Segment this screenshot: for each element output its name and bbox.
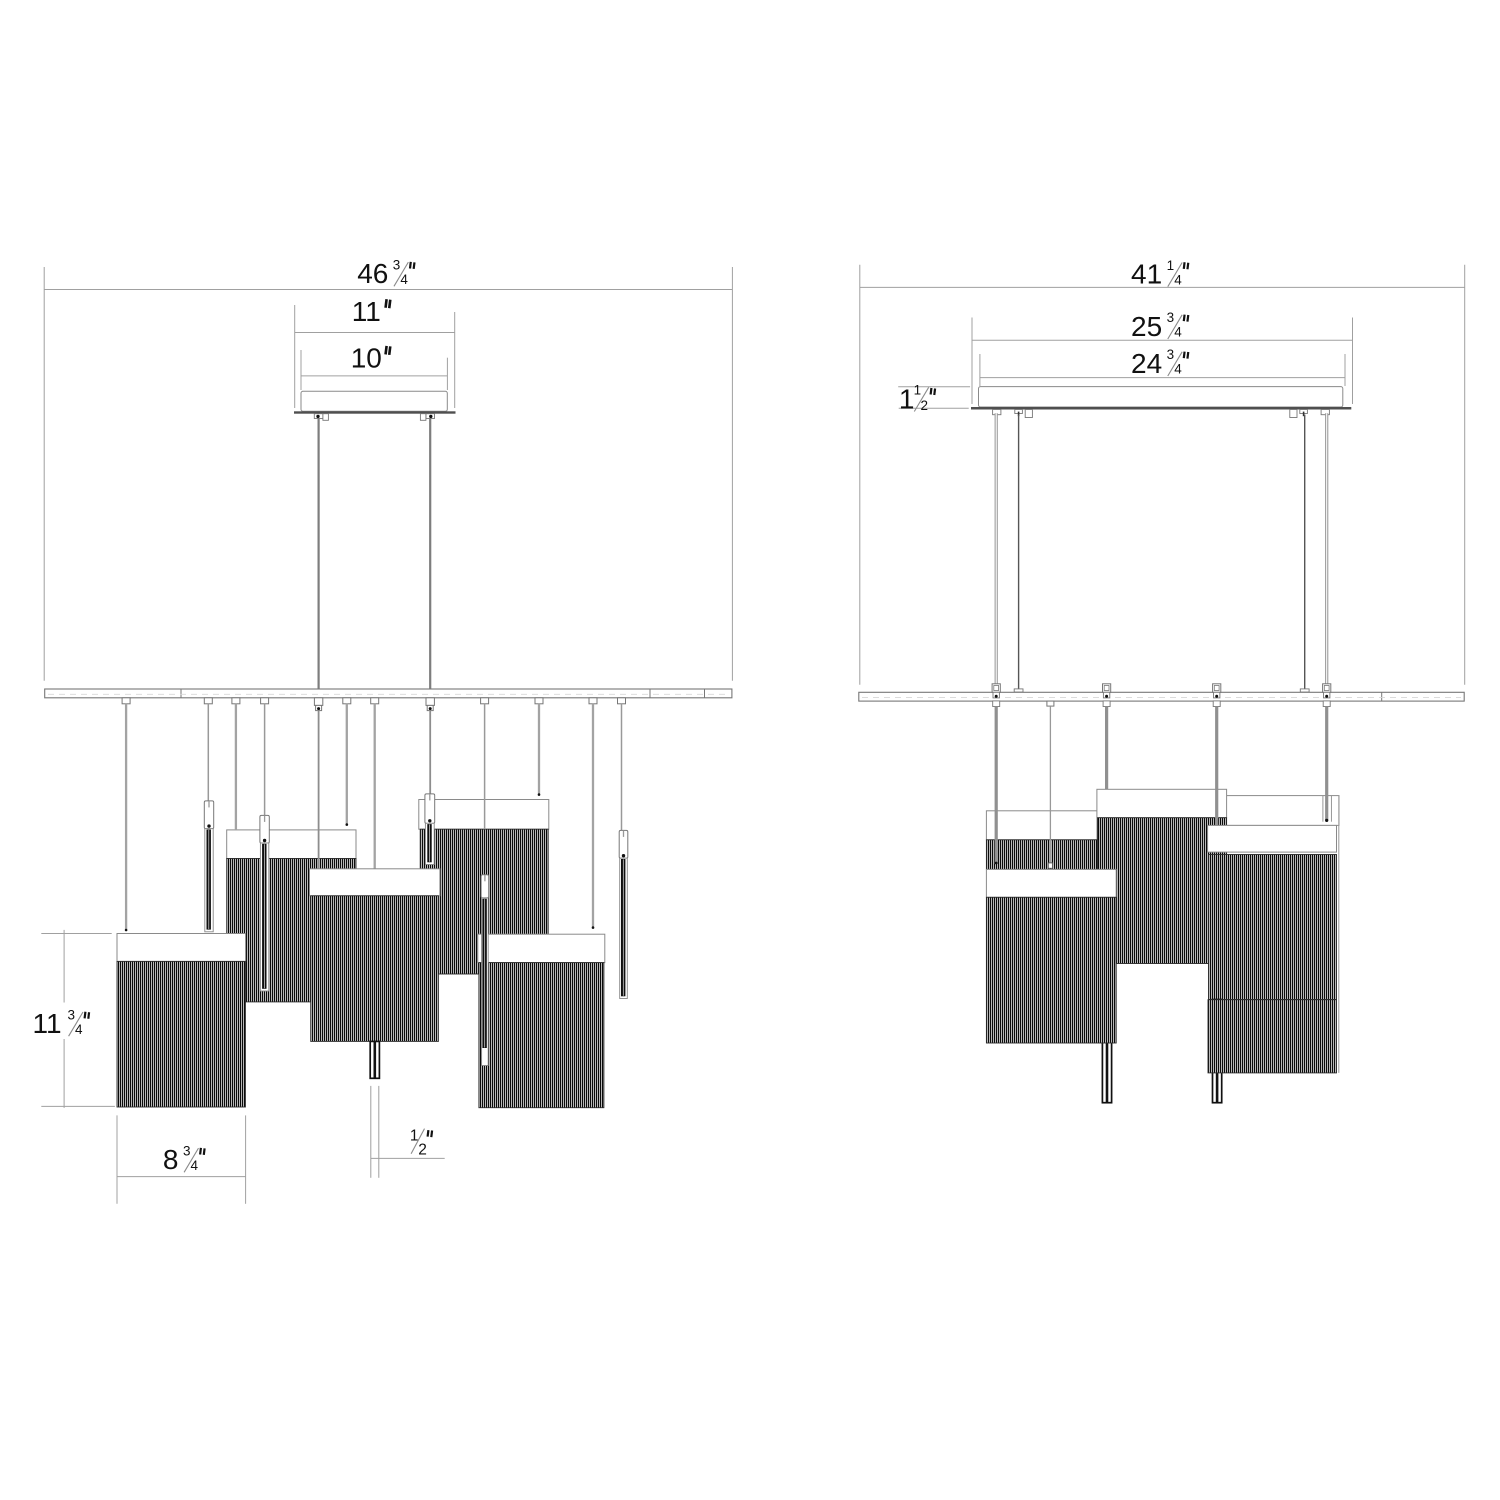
- svg-text:4: 4: [400, 272, 408, 287]
- svg-text:25: 25: [1131, 311, 1162, 342]
- svg-text:11: 11: [352, 296, 381, 327]
- svg-text:1: 1: [899, 383, 915, 414]
- svg-text:3: 3: [1167, 310, 1175, 325]
- svg-text:10: 10: [351, 343, 382, 374]
- svg-text:4: 4: [1174, 325, 1182, 340]
- svg-text:2: 2: [920, 398, 928, 413]
- svg-text:24: 24: [1131, 348, 1162, 379]
- svg-text:4: 4: [191, 1158, 199, 1173]
- svg-text:4: 4: [1174, 272, 1182, 287]
- svg-text:4: 4: [75, 1022, 83, 1037]
- svg-text:3: 3: [183, 1144, 191, 1159]
- svg-text:41: 41: [1131, 259, 1162, 290]
- svg-text:8: 8: [163, 1144, 179, 1175]
- svg-text:3: 3: [67, 1007, 75, 1022]
- svg-text:3: 3: [393, 258, 401, 273]
- svg-text:46: 46: [357, 258, 388, 289]
- svg-text:4: 4: [1174, 362, 1182, 377]
- svg-text:3: 3: [1167, 347, 1175, 362]
- svg-text:1: 1: [914, 383, 922, 398]
- svg-text:2: 2: [418, 1141, 427, 1158]
- svg-text:1: 1: [1167, 258, 1175, 273]
- svg-text:11: 11: [33, 1008, 62, 1039]
